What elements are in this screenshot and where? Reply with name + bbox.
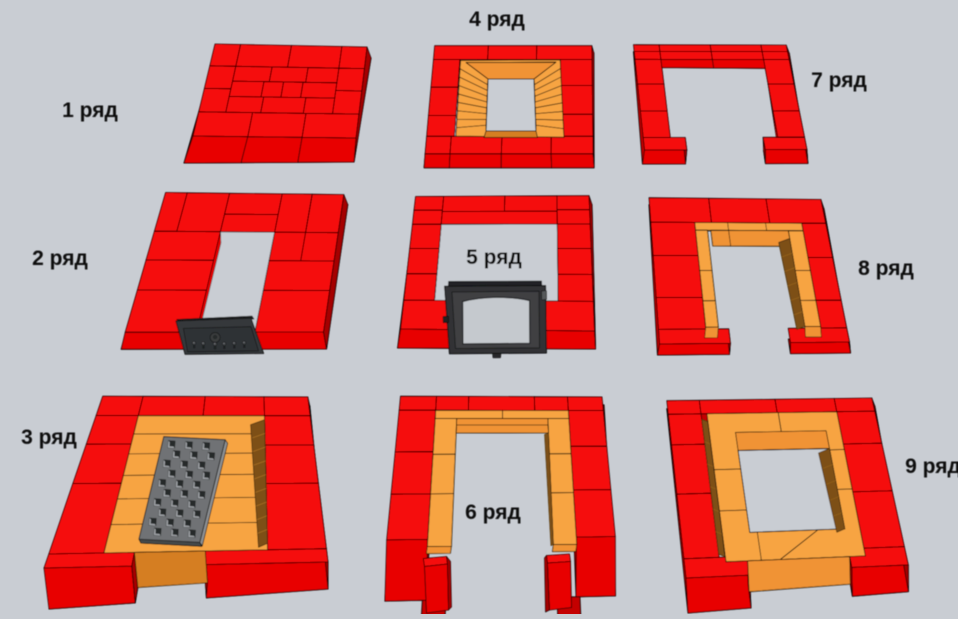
svg-text:8 ряд: 8 ряд [858, 257, 914, 280]
svg-text:1 ряд: 1 ряд [62, 99, 118, 122]
svg-text:5 ряд: 5 ряд [466, 246, 522, 269]
svg-text:6 ряд: 6 ряд [465, 501, 521, 524]
svg-text:3 ряд: 3 ряд [21, 426, 77, 449]
svg-text:2 ряд: 2 ряд [32, 247, 88, 270]
svg-text:9 ряд: 9 ряд [905, 455, 958, 478]
svg-text:4 ряд: 4 ряд [469, 8, 525, 31]
svg-text:7 ряд: 7 ряд [811, 69, 867, 92]
